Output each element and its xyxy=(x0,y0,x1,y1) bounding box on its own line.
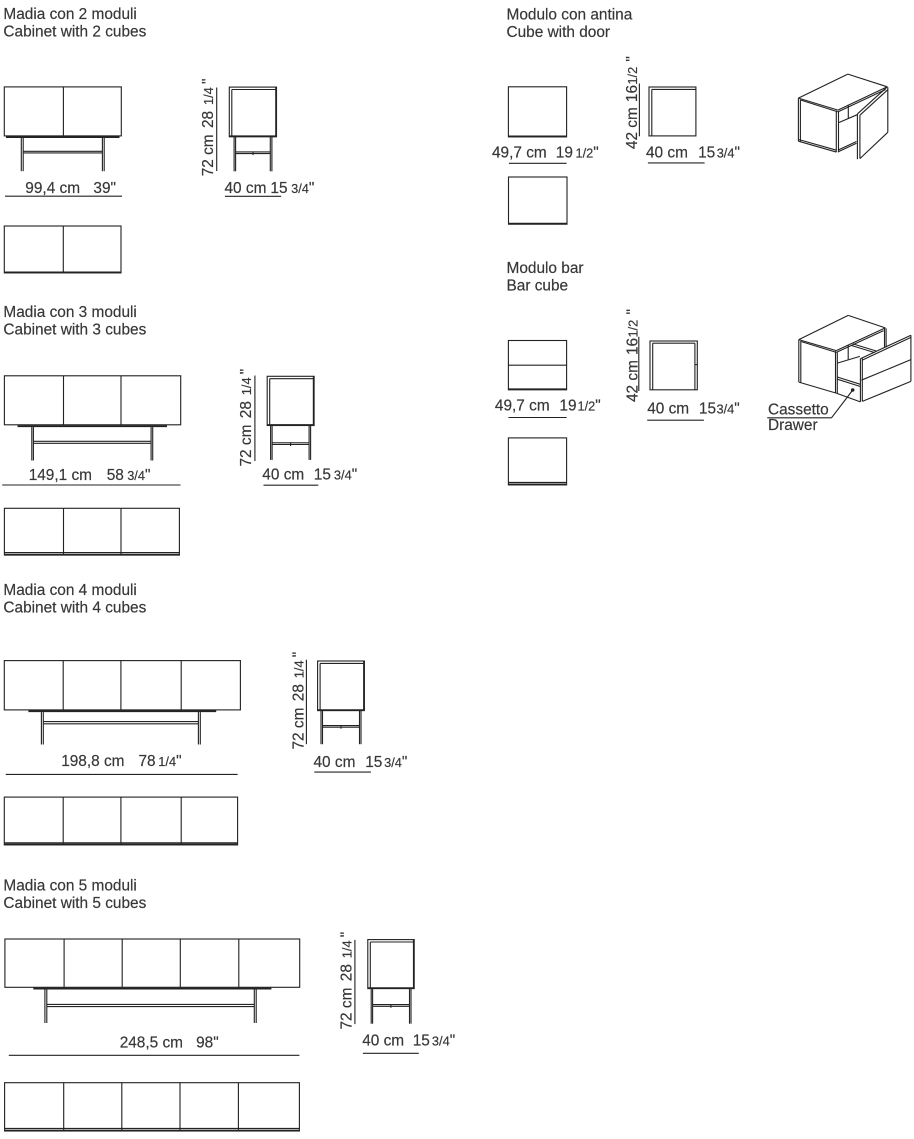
svg-text:Cassetto: Cassetto xyxy=(768,401,829,418)
svg-text:198,8 cm781/4": 198,8 cm781/4" xyxy=(61,753,181,770)
svg-text:Madia con 4 moduli: Madia con 4 moduli xyxy=(3,582,136,599)
svg-text:Cube with door: Cube with door xyxy=(507,24,611,41)
svg-text:49,7 cm191/2": 49,7 cm191/2" xyxy=(492,144,599,161)
svg-text:99,4 cm39": 99,4 cm39" xyxy=(25,180,116,197)
svg-text:49,7 cm191/2": 49,7 cm191/2" xyxy=(495,397,601,414)
svg-text:72 cm281/4": 72 cm281/4" xyxy=(200,79,217,177)
svg-text:42 cm161/2": 42 cm161/2" xyxy=(624,56,641,149)
svg-text:Cabinet with 2 cubes: Cabinet with 2 cubes xyxy=(3,23,146,40)
svg-text:72 cm281/4": 72 cm281/4" xyxy=(291,652,308,750)
svg-text:72 cm281/4": 72 cm281/4" xyxy=(238,369,255,467)
svg-text:42 cm161/2": 42 cm161/2" xyxy=(625,309,642,402)
svg-text:40 cm153/4": 40 cm153/4" xyxy=(647,401,740,418)
svg-text:Bar cube: Bar cube xyxy=(507,278,569,295)
svg-text:Madia con 2 moduli: Madia con 2 moduli xyxy=(3,6,136,23)
svg-text:Cabinet with 3 cubes: Cabinet with 3 cubes xyxy=(3,321,146,338)
svg-text:40 cm153/4": 40 cm153/4" xyxy=(314,754,408,771)
svg-text:149,1 cm583/4": 149,1 cm583/4" xyxy=(29,467,151,484)
svg-text:Madia con 5 moduli: Madia con 5 moduli xyxy=(3,878,136,895)
svg-text:248,5 cm98": 248,5 cm98" xyxy=(120,1035,219,1052)
svg-text:Madia con 3 moduli: Madia con 3 moduli xyxy=(3,304,136,321)
svg-text:Cabinet with 4 cubes: Cabinet with 4 cubes xyxy=(3,599,146,616)
svg-text:40 cm153/4": 40 cm153/4" xyxy=(362,1033,455,1050)
svg-text:40 cm153/4": 40 cm153/4" xyxy=(225,180,315,197)
svg-text:Cabinet with 5 cubes: Cabinet with 5 cubes xyxy=(3,895,146,912)
svg-text:40 cm153/4": 40 cm153/4" xyxy=(262,466,357,483)
svg-text:40 cm153/4": 40 cm153/4" xyxy=(646,144,740,161)
svg-text:Drawer: Drawer xyxy=(768,417,818,434)
svg-text:Modulo con antina: Modulo con antina xyxy=(507,7,633,24)
svg-text:Modulo bar: Modulo bar xyxy=(507,260,584,277)
svg-text:72 cm281/4": 72 cm281/4" xyxy=(338,932,355,1030)
